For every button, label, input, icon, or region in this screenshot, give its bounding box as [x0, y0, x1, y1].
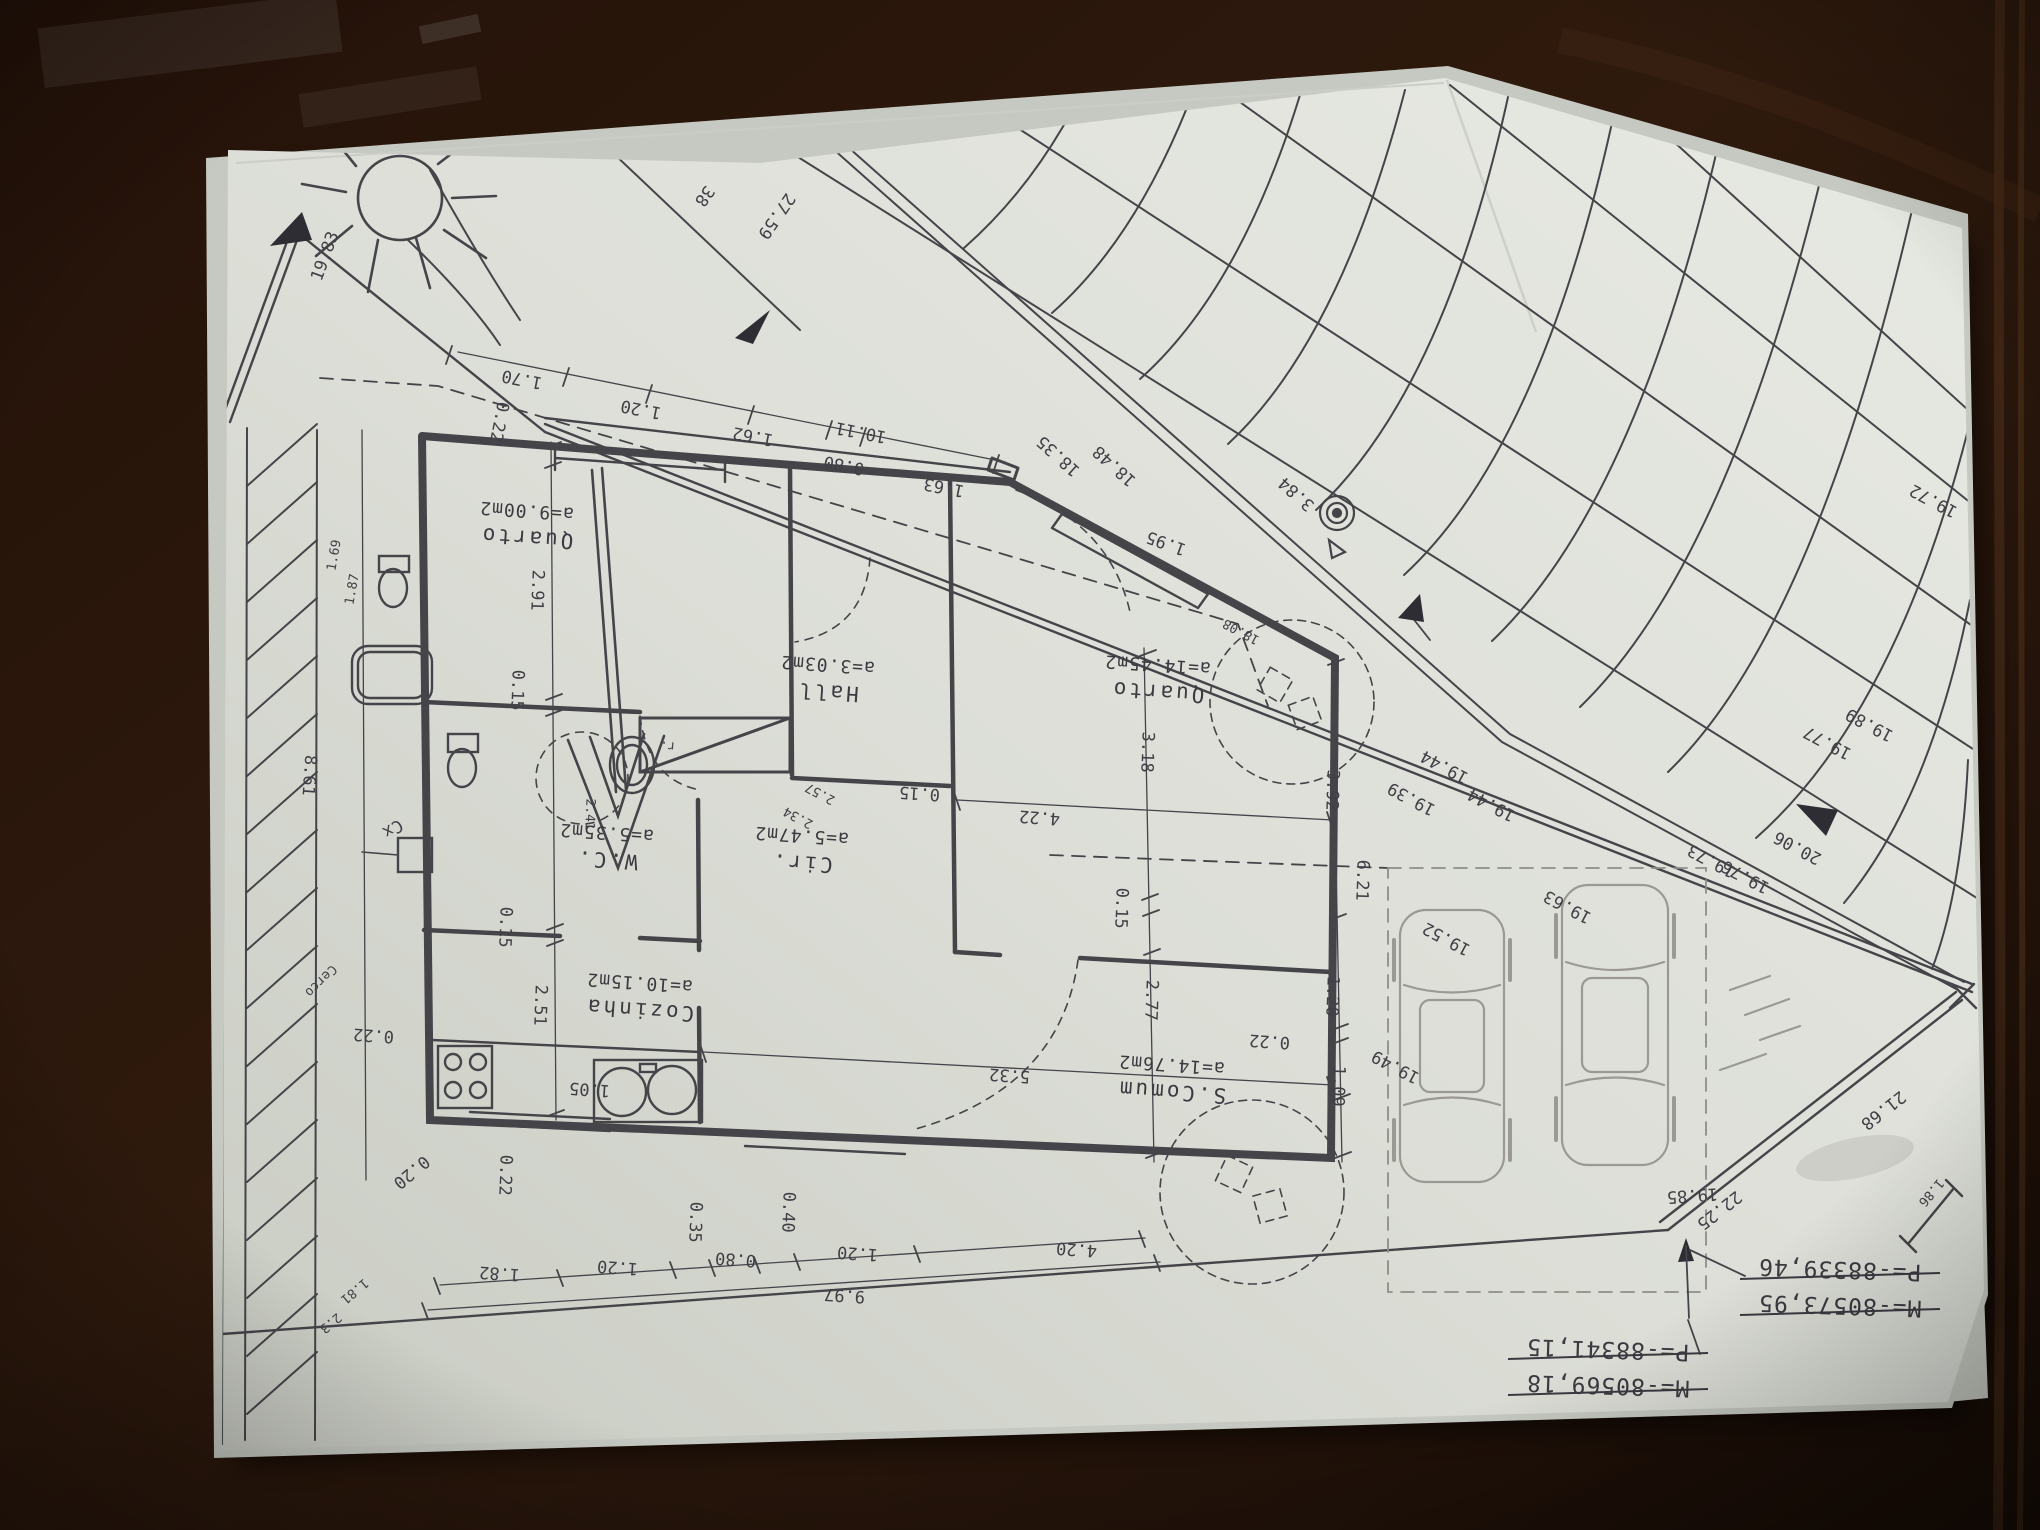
- floor-plan-photo: 1.701.201.6210.110.801.631.950.222.910.1…: [0, 0, 2040, 1530]
- photo-vignette: [0, 0, 2040, 1530]
- photo-of-floor-plan: 1.701.201.6210.110.801.631.950.222.910.1…: [0, 0, 2040, 1530]
